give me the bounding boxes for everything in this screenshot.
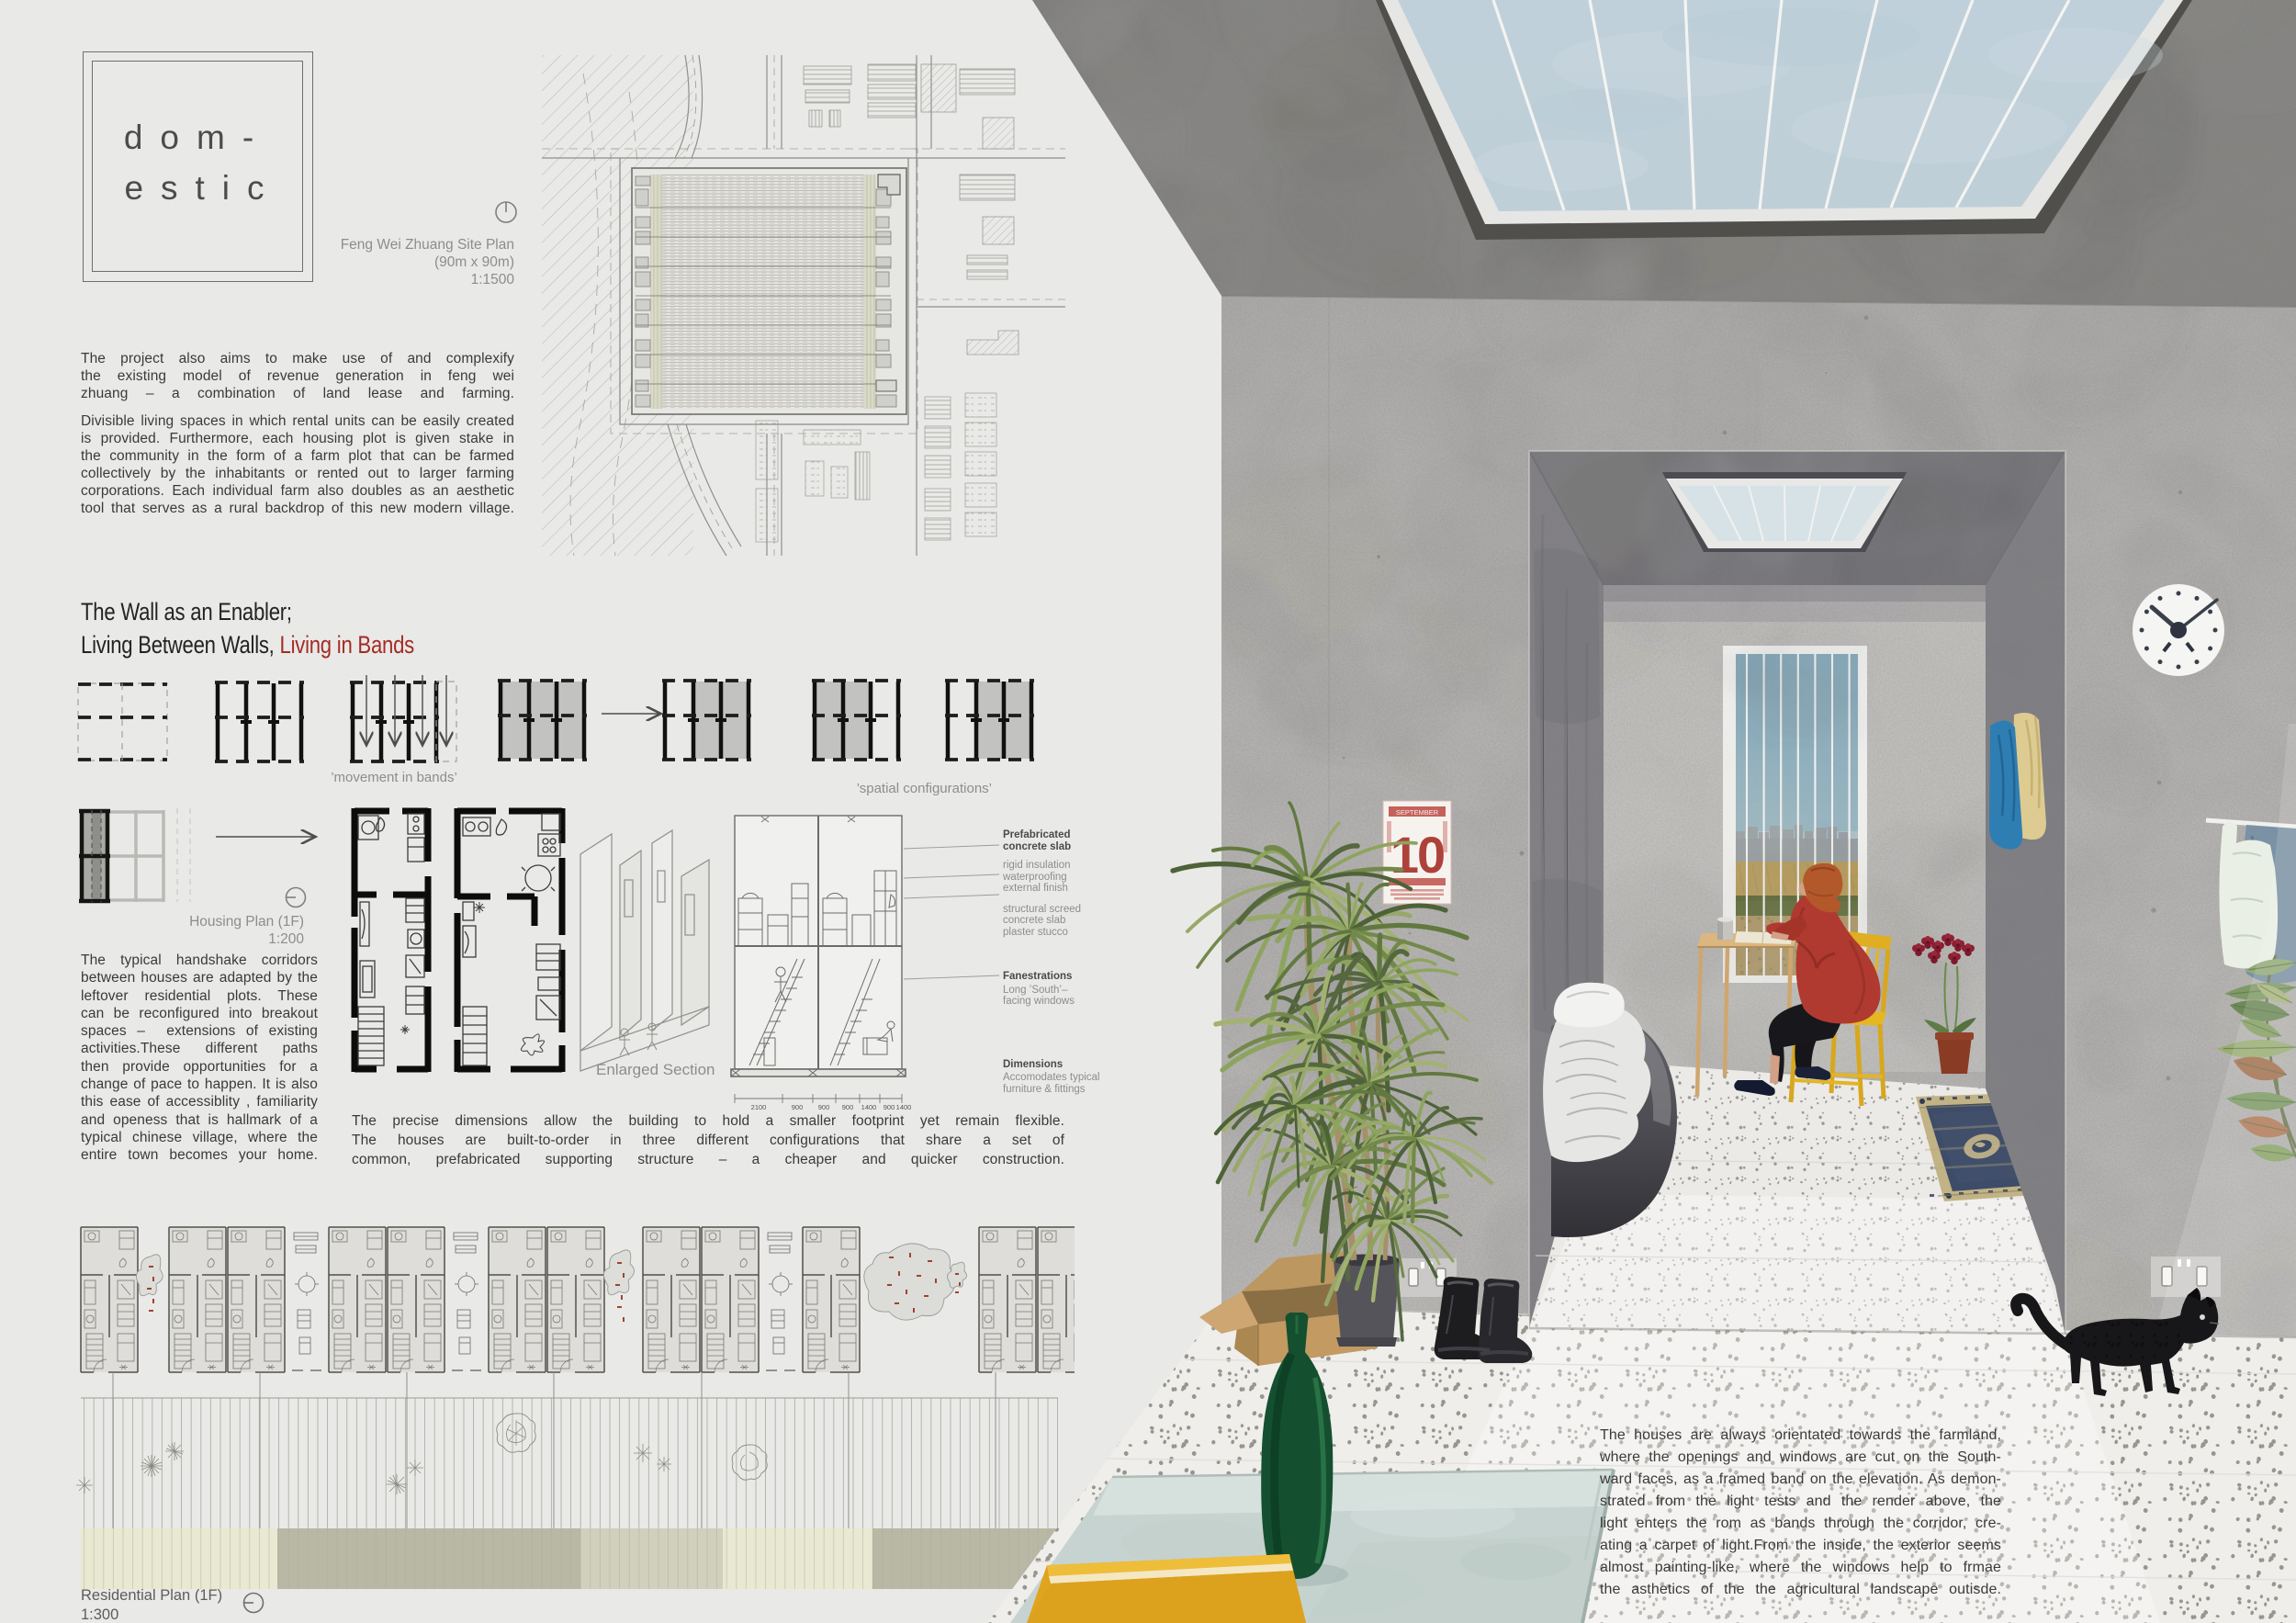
svg-text:SEPTEMBER: SEPTEMBER <box>1396 808 1439 817</box>
svg-text:10: 10 <box>1390 826 1444 884</box>
